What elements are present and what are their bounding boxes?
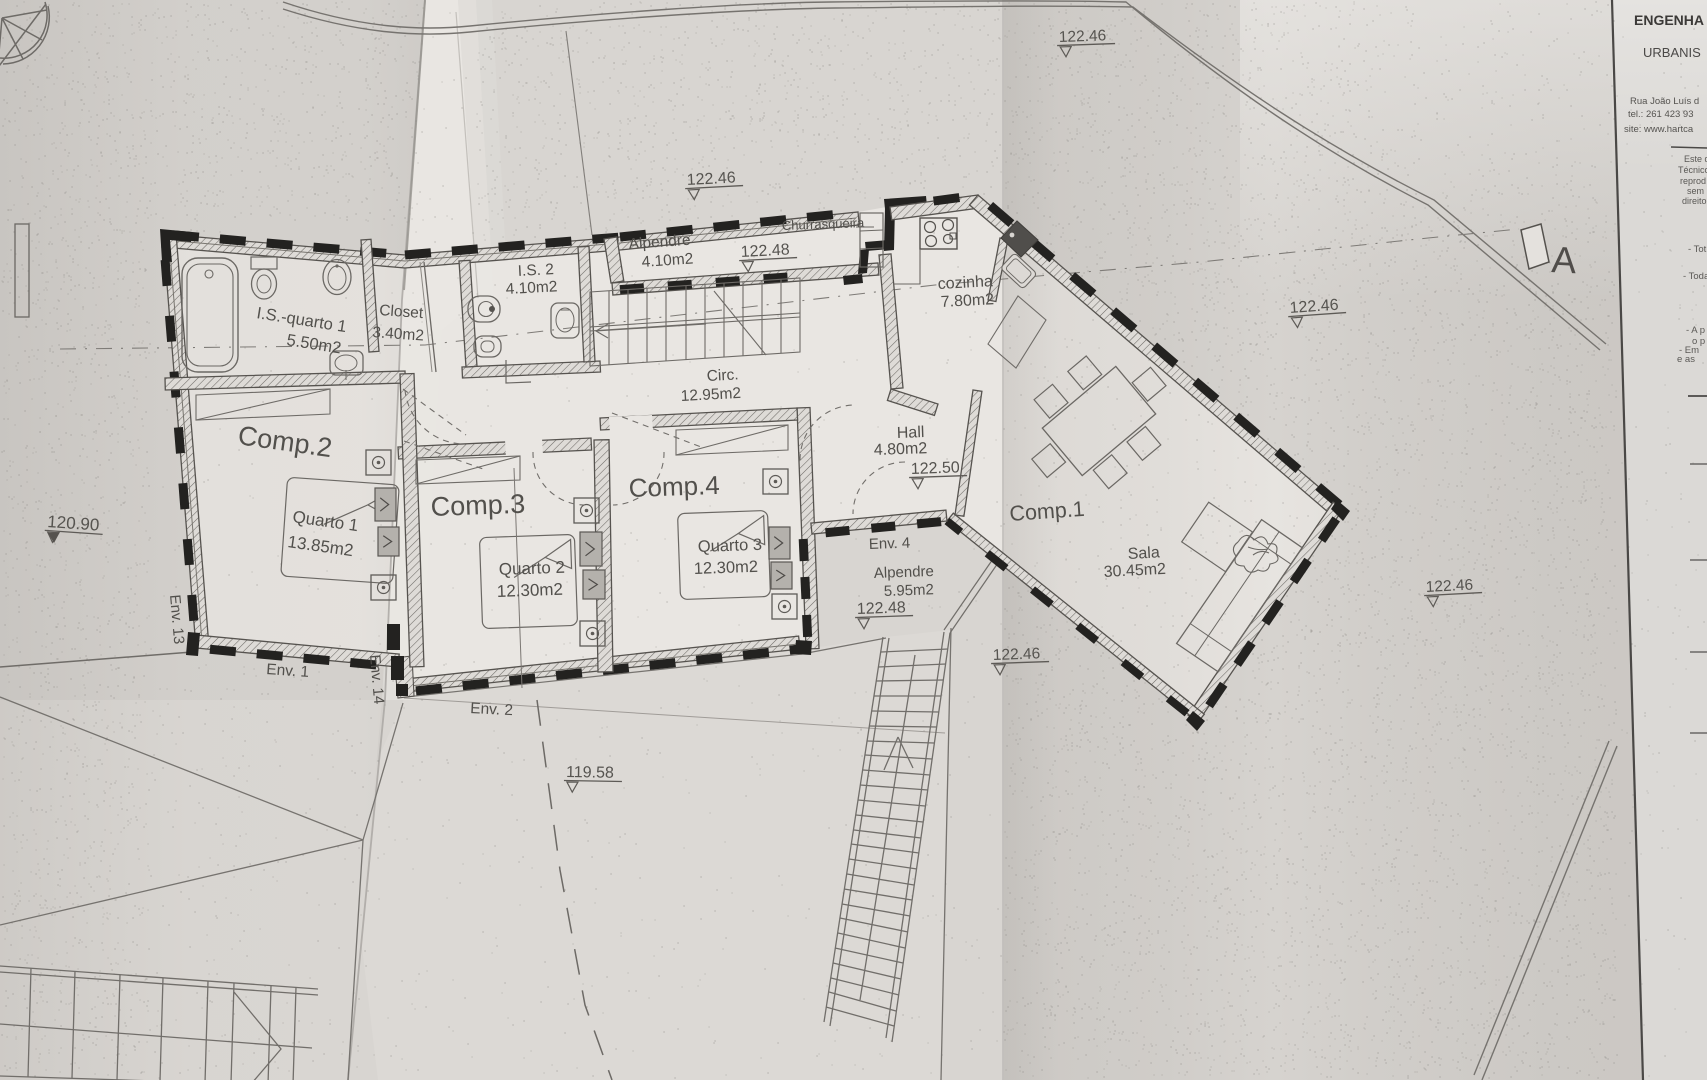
svg-text:4.10m2: 4.10m2	[505, 278, 558, 298]
svg-text:12.95m2: 12.95m2	[680, 385, 741, 405]
svg-text:122.46: 122.46	[1059, 27, 1107, 46]
svg-text:Quarto 3: Quarto 3	[698, 536, 763, 556]
svg-text:Circ.: Circ.	[706, 366, 739, 385]
svg-text:sem: sem	[1687, 186, 1704, 196]
svg-text:site: www.hartca: site: www.hartca	[1624, 124, 1694, 135]
svg-text:cozinha: cozinha	[937, 273, 993, 293]
svg-text:Técnico: Técnico	[1678, 165, 1707, 175]
svg-text:e as: e as	[1677, 354, 1695, 365]
svg-text:- A p: - A p	[1686, 325, 1705, 336]
svg-text:Comp.4: Comp.4	[628, 470, 720, 503]
svg-text:7.80m2: 7.80m2	[940, 291, 994, 311]
svg-text:- Toda: - Toda	[1683, 271, 1707, 282]
svg-text:12.30m2: 12.30m2	[694, 558, 759, 578]
svg-text:Hall: Hall	[897, 424, 925, 442]
svg-text:119.58: 119.58	[566, 764, 614, 782]
svg-text:122.48: 122.48	[857, 599, 907, 618]
svg-text:3.40m2: 3.40m2	[372, 324, 425, 345]
svg-text:Comp.3: Comp.3	[430, 489, 526, 522]
svg-text:Churrasqueira: Churrasqueira	[782, 215, 866, 233]
svg-text:Este d: Este d	[1684, 154, 1707, 164]
svg-text:direito: direito	[1682, 196, 1707, 206]
svg-text:Rua João Luís d: Rua João Luís d	[1630, 96, 1699, 107]
svg-text:5.95m2: 5.95m2	[884, 581, 935, 600]
svg-text:A: A	[1551, 239, 1578, 281]
svg-text:Quarto 2: Quarto 2	[498, 558, 565, 579]
svg-text:30.45m2: 30.45m2	[1103, 561, 1166, 581]
svg-text:reprod: reprod	[1680, 176, 1706, 186]
svg-text:Env. 4: Env. 4	[869, 535, 911, 553]
svg-text:Env. 1: Env. 1	[266, 661, 310, 681]
svg-text:- Tot: - Tot	[1688, 244, 1707, 255]
svg-text:4.80m2: 4.80m2	[874, 440, 928, 459]
svg-text:Sala: Sala	[1127, 544, 1160, 563]
svg-text:ENGENHA: ENGENHA	[1634, 12, 1704, 28]
svg-text:122.46: 122.46	[993, 645, 1041, 664]
svg-text:Closet: Closet	[379, 302, 425, 322]
svg-text:122.50: 122.50	[911, 459, 961, 478]
svg-text:I.S. 2: I.S. 2	[517, 261, 554, 280]
svg-text:12.30m2: 12.30m2	[496, 580, 563, 601]
svg-text:URBANIS: URBANIS	[1643, 45, 1701, 60]
svg-text:Env. 2: Env. 2	[470, 700, 514, 719]
svg-text:Alpendre: Alpendre	[874, 563, 935, 582]
svg-text:tel.: 261 423 93: tel.: 261 423 93	[1628, 109, 1694, 120]
svg-text:4.10m2: 4.10m2	[641, 250, 694, 271]
